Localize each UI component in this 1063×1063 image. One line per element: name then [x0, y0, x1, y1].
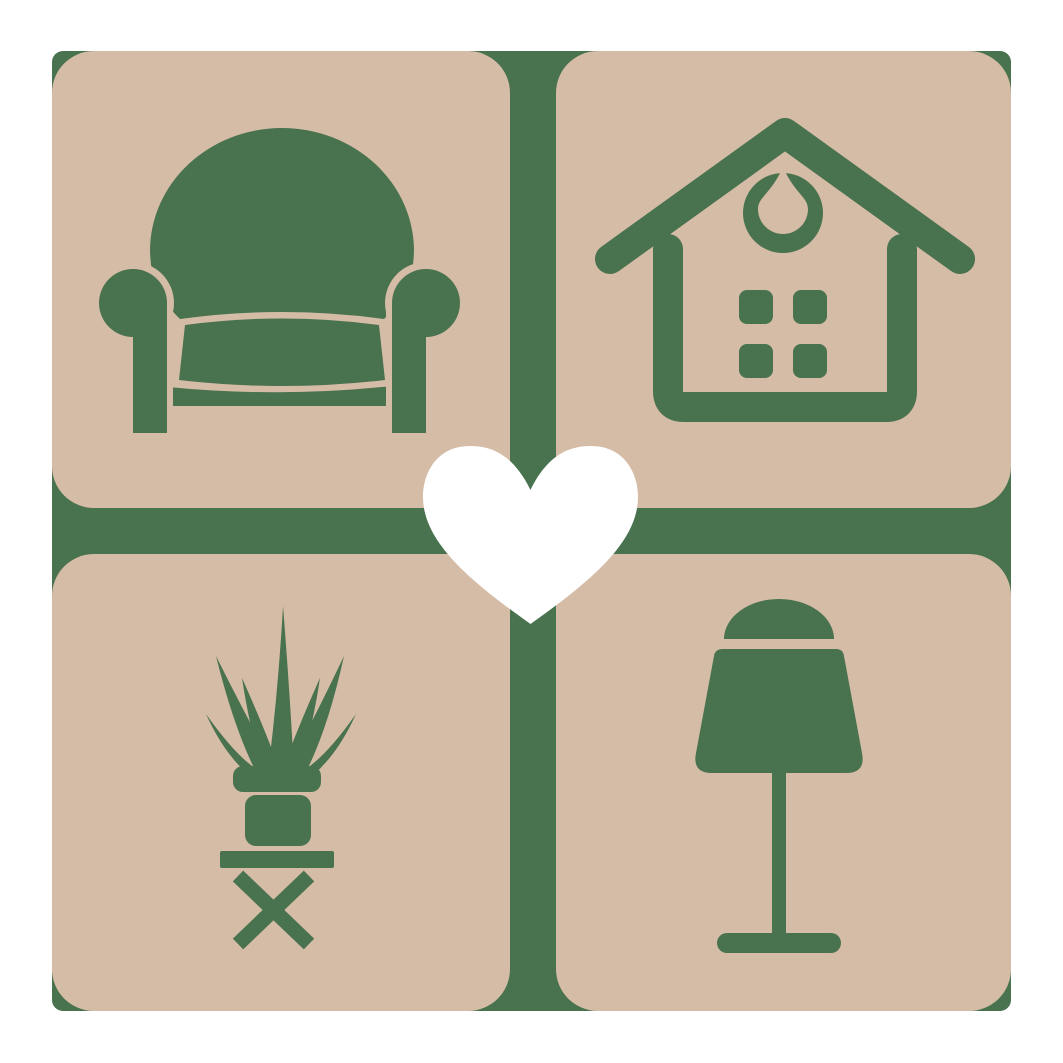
armchair-seat: [179, 319, 385, 387]
lamp-shade: [695, 649, 862, 773]
armchair-left-armrest: [99, 269, 167, 337]
plant-pot-body: [245, 795, 311, 846]
house-window-pane: [793, 290, 827, 324]
tile-bottom-left: [52, 554, 510, 1011]
plant-pot-rim: [233, 766, 321, 792]
tile-top-right: [556, 51, 1011, 508]
logo-canvas: [0, 0, 1063, 1063]
lamp-stem: [772, 773, 786, 941]
house-window-pane: [739, 344, 773, 378]
house-window-pane: [793, 344, 827, 378]
lamp-base: [717, 933, 841, 953]
tile-bottom-right: [556, 554, 1011, 1011]
stool-top: [220, 851, 334, 868]
armchair-right-armrest: [392, 269, 460, 337]
house-window-pane: [739, 290, 773, 324]
brand-logo: [0, 0, 1063, 1063]
tile-top-left: [52, 51, 510, 508]
